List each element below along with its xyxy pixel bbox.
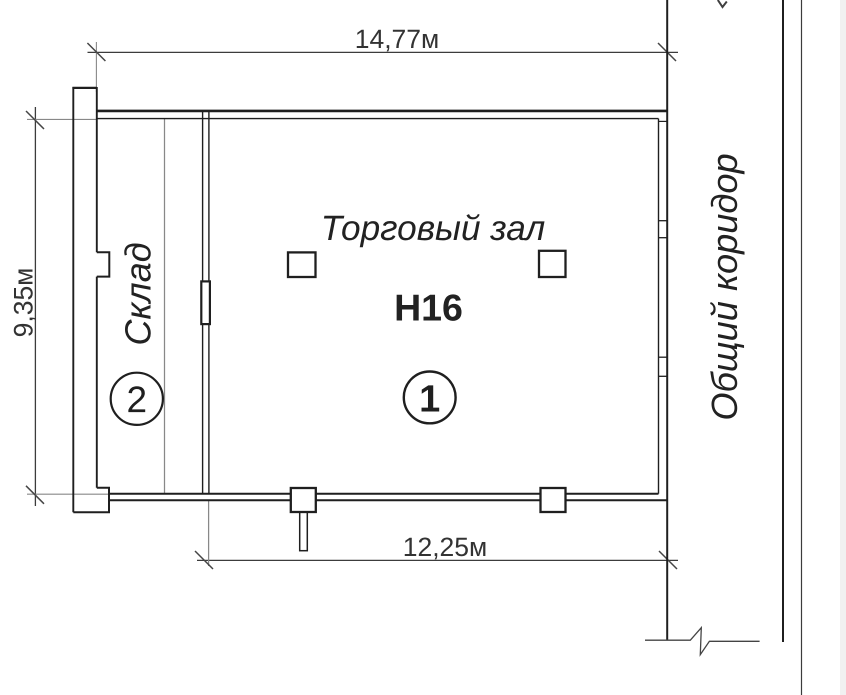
svg-text:14,77м: 14,77м [355,24,440,54]
svg-text:9,35м: 9,35м [9,268,39,338]
svg-text:Общий коридор: Общий коридор [704,153,745,420]
svg-text:2: 2 [127,379,148,420]
svg-text:Торговый зал: Торговый зал [321,209,546,248]
svg-text:12,25м: 12,25м [403,532,488,562]
svg-text:Склад: Склад [118,242,159,345]
svg-text:1: 1 [419,378,440,420]
svg-text:Н16: Н16 [394,286,463,328]
